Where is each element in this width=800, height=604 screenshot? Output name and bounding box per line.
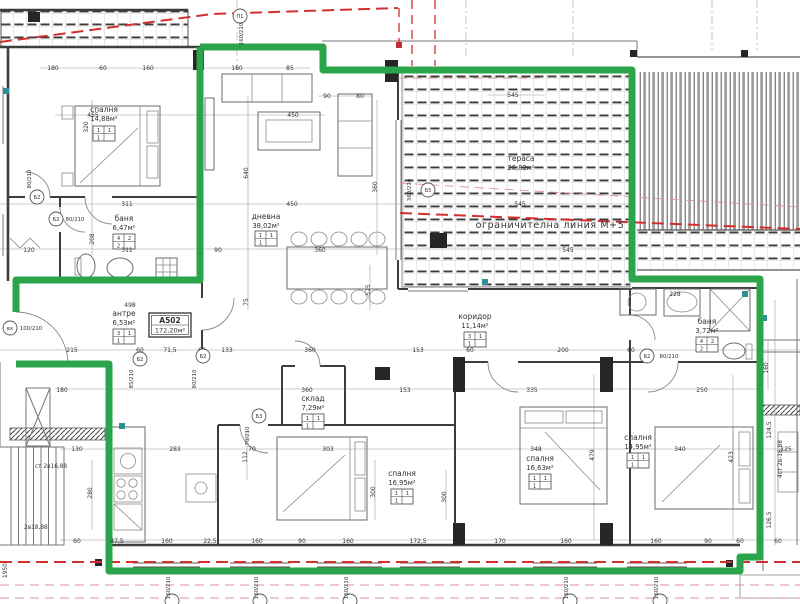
door-size-label: 80/210 [192,369,198,389]
dimension-label: 545 [507,92,519,99]
room-area: 3,72м² [696,327,719,335]
door-size-label: 160/210 [254,576,260,599]
dimension-label: 450 [286,201,298,208]
dimension-label: 320 [83,121,90,133]
schedule-value: 3 [468,334,471,340]
dimension-label: 90 [298,538,306,545]
door-mark-id: Б3 [256,414,263,420]
schedule-value: 1 [117,339,120,345]
dimension-label: 126,5 [766,511,773,528]
door-mark-id: Б2 [53,217,60,223]
room-area: 6,53м² [113,319,136,327]
schedule-value: 1 [317,416,320,422]
door-size-label: 70/210 [245,426,251,446]
dimension-label: 283 [169,446,181,453]
door-size-label: 80/210 [66,217,86,223]
note-label: ст 2в16,88 [35,464,67,470]
note-label: 4ст 2в-16,88 [778,440,784,478]
door-size-label: 160/210 [654,576,660,599]
dimension-label: 85 [286,65,294,72]
apartment-id: А502 [159,316,180,325]
dimension-label: 300 [370,486,377,498]
dimension-label: 215 [66,347,78,354]
door-size-label: 160/210 [239,22,245,45]
door-mark-id: вх [7,326,13,332]
dimension-label: 153 [412,347,424,354]
dimension-label: 90 [323,93,331,100]
schedule-value: 2 [711,339,714,345]
apartment-id-box: А502 172,20м² [149,313,191,337]
room-area: 11,14м² [461,322,489,330]
dimension-label: 348 [530,446,542,453]
dimension-label: 200 [557,347,569,354]
room-name: коридор [458,312,492,321]
floor-plan-sheet: ограничителна линия М+5 А502 172,20м² сп… [0,0,800,604]
schedule-value: 2 [700,347,703,353]
dimension-label: 545 [562,247,574,254]
dimension-label: 360 [304,347,316,354]
room-area: 16,63м² [526,464,554,472]
dimension-label: 112 [242,451,249,463]
dimension-label: 300 [441,491,448,503]
schedule-value: 1 [631,463,634,469]
dimension-label: 22,5 [203,538,217,545]
dimension-label: 90 [704,538,712,545]
dimension-label: 130 [71,446,83,453]
dimension-label: 250 [696,387,708,394]
dimension-label: 228 [669,291,681,298]
dimension-label: 90 [214,247,222,254]
schedule-value: 1 [97,128,100,134]
door-size-label: 160/210 [166,576,172,599]
schedule-value: 1 [259,241,262,247]
schedule-value: 2 [128,236,131,242]
dimension-label: 525 [365,284,372,296]
apartment-area: 172,20м² [155,327,186,335]
stair-core-hatch [10,405,800,440]
dimension-label: 180 [47,65,59,72]
furniture-kitchen [112,427,216,542]
dimension-label: 60 [736,538,744,545]
room-area: 7,29м² [302,404,325,412]
schedule-value: 1 [544,476,547,482]
dimension-label: 360 [372,181,379,193]
dimension-label: 160 [763,362,770,374]
dimension-label: 60 [774,538,782,545]
room-name: спалня [624,433,652,442]
dimension-label: 498 [124,302,136,309]
schedule-value: 1 [395,499,398,505]
dimension-label: 479 [589,449,596,461]
dimension-label: 153 [399,387,411,394]
door-size-label: 80/210 [27,169,33,189]
door-mark-id: Б2 [644,354,651,360]
dimension-label: 311 [121,247,133,254]
dimension-label: 170 [494,538,506,545]
dimension-label: 360 [301,387,313,394]
schedule-value: 1 [270,233,273,239]
dimension-label: 180 [56,387,68,394]
dimension-label: 340 [674,446,686,453]
axis-bubbles [165,594,667,604]
dimension-label: 450 [287,112,299,119]
schedule-value: 1 [395,491,398,497]
dimension-label: 70 [248,446,256,453]
schedule-value: 2 [117,244,120,250]
dimension-label: 133 [221,347,233,354]
room-name: баня [115,214,134,223]
door-mark-id: П1 [236,14,243,20]
floor-plan-svg: ограничителна линия М+5 А502 172,20м² сп… [0,0,800,604]
door-size-label: 160/210 [344,576,350,599]
dimension-label: 303 [322,446,334,453]
schedule-value: 1 [306,416,309,422]
furniture-bath-2 [620,289,752,359]
room-name: баня [698,317,717,326]
door-size-label: 85/210 [129,369,135,389]
room-name: спалня [388,469,416,478]
dimension-label: 60 [466,347,474,354]
schedule-value: 1 [533,476,536,482]
schedule-value: 1 [259,233,262,239]
dimension-label: 640 [243,167,250,179]
note-label: 2в18,88 [24,525,48,531]
door-size-label: 360/210 [407,178,413,201]
dimension-label: 545 [514,201,526,208]
room-area: 14,95м² [624,443,652,451]
schedule-value: 1 [479,334,482,340]
dimension-label: 455 [87,112,99,119]
restriction-node [396,42,402,48]
dimension-label: 160 [342,538,354,545]
dimension-label: 160 [251,538,263,545]
dimension-label: 280 [87,487,94,499]
schedule-value: 1 [533,484,536,490]
dimension-label: 160 [161,538,173,545]
dimension-label: 160 [560,538,572,545]
dimension-label: 71,5 [163,347,177,354]
dimension-label: 160 [142,65,154,72]
door-mark-id: Б2 [200,354,207,360]
room-name: антре [112,309,136,318]
door-mark-id: Б2 [137,357,144,363]
room-area: 38,02м² [252,222,280,230]
furniture-dining [287,232,387,304]
note-label: 1950 [3,563,9,578]
dimension-label: 160 [650,538,662,545]
dimension-label: 60 [99,65,107,72]
dimension-label: 360 [314,247,326,254]
schedule-value: 1 [108,128,111,134]
dimension-label: 60 [627,347,635,354]
dimension-label: 160 [231,65,243,72]
schedule-value: 1 [97,136,100,142]
door-mark-id: Б5 [425,188,432,194]
dimension-label: 47,5 [110,538,124,545]
dimension-label: 60 [73,538,81,545]
dimension-label: 80 [356,93,364,100]
dimension-label: 172,5 [409,538,426,545]
schedule-value: 1 [128,331,131,337]
door-size-label: 160/210 [564,576,570,599]
dimension-label: 335 [526,387,538,394]
schedule-value: 1 [406,491,409,497]
room-area: 26,82м² [507,164,535,172]
room-name: спалня [526,454,554,463]
furniture-living [205,74,372,176]
dimension-label: 208 [89,233,96,245]
schedule-value: 3 [117,331,120,337]
door-mark-id: Б2 [34,195,41,201]
room-name: тераса [507,154,534,163]
restriction-line-label: ограничителна линия М+5 [476,220,625,231]
room-name: склад [301,394,324,403]
door-size-label: 80/210 [660,354,680,360]
door-size-label: 100/210 [20,326,43,332]
terrace-hatch [402,73,630,287]
furniture-bedroom-4 [655,427,753,509]
room-area: 6,47м² [113,224,136,232]
room-area: 16,95м² [388,479,416,487]
dimension-label: 423 [728,451,735,463]
dimension-label: 124,5 [766,421,773,438]
schedule-value: 1 [642,455,645,461]
schedule-value: 1 [306,424,309,430]
room-name: дневна [252,212,281,221]
dimension-label: 120 [23,247,35,254]
dimension-label: 75 [243,298,250,306]
schedule-value: 1 [631,455,634,461]
dimension-label: 311 [121,201,133,208]
